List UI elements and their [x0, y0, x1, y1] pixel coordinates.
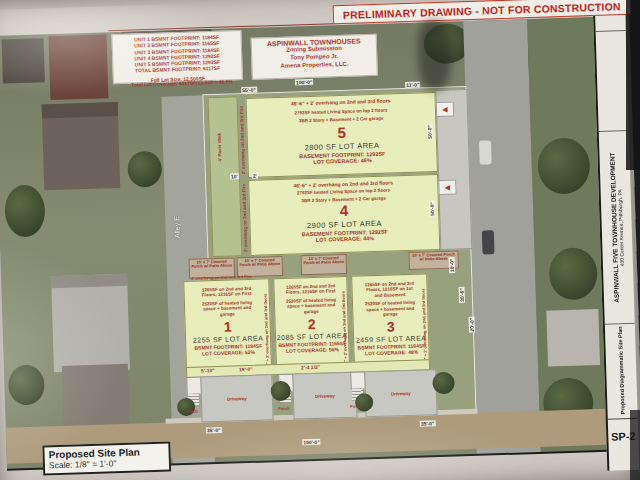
dim-drv-b: 19'-0" [238, 366, 254, 372]
lot2-heated: 2520SF of heated living space + basement… [285, 297, 337, 315]
porch-1-label: Porch [186, 409, 197, 414]
aerial-house-white [546, 309, 600, 367]
aerial-house [2, 38, 45, 83]
tree [4, 184, 46, 237]
lot5-dim-note: 48'-6" + 2' overhang on 2nd and 3rd floo… [255, 96, 427, 108]
aerial-house-white [51, 274, 130, 372]
dim-right-a: 10'-0" [449, 257, 455, 273]
porch-3-label: Porch [350, 403, 361, 408]
driveway-3-label: Driveway [391, 390, 411, 396]
titleblock-sheettitle-cell: Proposed Diagrammatic Site Plan [605, 325, 638, 416]
dim-right-b: 30'-6" [459, 287, 465, 303]
lot2-number: 2 [275, 316, 347, 332]
dim-50-lot5: 50'-0" [426, 124, 432, 140]
driveway-2-label: Driveway [315, 393, 335, 399]
dim-top-b: 100'-0" [295, 79, 314, 86]
car [482, 230, 495, 254]
tree [127, 151, 162, 188]
dim-street-a: 35'-0" [206, 427, 222, 433]
entry-arrow-icon: ◀ [445, 184, 451, 191]
porch-note-3: 10' x 7' Covered Porch w/ Patio Above [300, 254, 347, 275]
lot1-number: 1 [185, 318, 269, 335]
dim-drv-c: 2'-4 1/2" [300, 364, 321, 371]
dim-top-a: 55'-0" [241, 87, 257, 93]
dim-right-c: 20'-0" [468, 317, 474, 333]
photo-shadow [417, 20, 451, 91]
dim-lot4-b: 2' [252, 173, 258, 179]
lot-5: 48'-6" + 2' overhang on 2nd and 3rd floo… [246, 92, 438, 178]
entry-marker-lot4: ◀ [438, 179, 456, 195]
paper-sheet: 4' Paver Walk 2' overhang on 2nd and 3rd… [0, 0, 640, 480]
lot1-heated: 2520SF of heated living space + basement… [195, 299, 259, 317]
titleblock-divider [599, 130, 629, 132]
driveway-2: Driveway [292, 372, 357, 420]
aerial-house [42, 102, 121, 190]
dim-50-lot4: 50'-0" [429, 201, 435, 217]
porch-3 [350, 371, 366, 389]
dim-lot4-a: 10' [230, 173, 239, 179]
desk-corner [630, 410, 640, 480]
tree [8, 364, 45, 405]
titleblock-divider [596, 30, 626, 32]
lot-2: 1265SF on 2nd and 3rd Floors, 1216SF on … [273, 276, 350, 366]
driveway-1: Driveway [200, 374, 273, 422]
titleblock-sheet-title: Proposed Diagrammatic Site Plan [617, 326, 626, 414]
porch-2-label: Porch [278, 406, 289, 411]
aerial-house-red [48, 34, 108, 100]
unit-summary-box: UNIT 1 BSMNT FOOTPRINT: 1184SF UNIT 2 BS… [111, 30, 243, 84]
lot3-heated: 2520SF of heated living space + basement… [363, 300, 417, 318]
lot3-number: 3 [354, 319, 428, 335]
project-title-box: ASPINWALL TOWNHOUSES Zoning Submission T… [251, 34, 378, 80]
paver-walk-label: 4' Paver Walk [217, 133, 223, 162]
lot1-floors: 1265SF on 2nd and 3rd Floors, 1216SF on … [194, 286, 258, 299]
driveway-1-label: Driveway [227, 396, 247, 402]
dim-drv-a: 5'-10" [200, 367, 216, 373]
lot2-coverage: LOT COVERAGE: 56% [276, 346, 348, 354]
alley-label: Alley E [173, 216, 181, 238]
lot2-floors: 1265SF on 2nd and 3rd Floors, 1216SF on … [284, 283, 336, 295]
lot-4: 48'-6" + 2' overhang on 2nd and 3rd floo… [248, 174, 440, 256]
lot-1: 1265SF on 2nd and 3rd Floors, 1216SF on … [183, 278, 272, 369]
dim-street-b: 100'-0" [302, 439, 321, 446]
entry-marker-lot5: ◀ [436, 101, 454, 117]
lot3-floors: 1265SF on 2nd and 3rd Floors, 1216SF on … [362, 281, 416, 299]
photo-of-site-plan: 4' Paver Walk 2' overhang on 2nd and 3rd… [0, 0, 640, 480]
drawing-sheet: 4' Paver Walk 2' overhang on 2nd and 3rd… [0, 0, 640, 480]
sheet-title-box: Proposed Site Plan Scale: 1/8" = 1'-0" [42, 442, 171, 476]
desk-corner [626, 0, 640, 170]
car [479, 140, 492, 164]
entry-arrow-icon: ◀ [442, 106, 448, 113]
driveway-3: Driveway [364, 369, 437, 417]
dim-street-c: 35'-0" [420, 420, 436, 426]
dim-top-c: 11'-0" [405, 81, 420, 87]
porch-1 [186, 377, 202, 395]
lot-3: 1265SF on 2nd and 3rd Floors, 1216SF on … [351, 273, 430, 363]
lot3-coverage: LOT COVERAGE: 48% [355, 349, 429, 357]
